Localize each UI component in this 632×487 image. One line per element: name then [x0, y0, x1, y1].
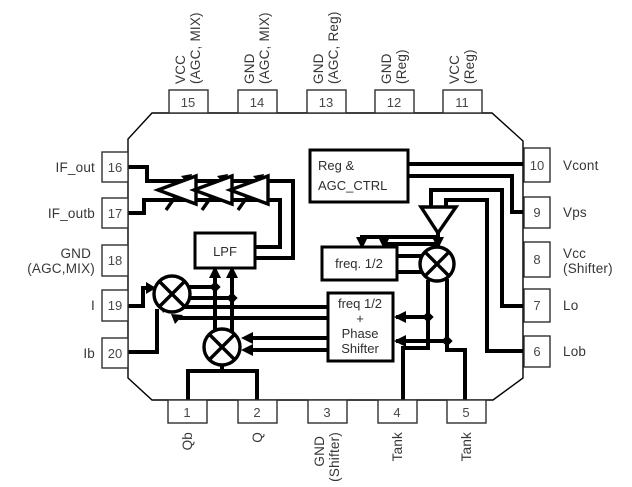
pin-number-4: 4	[393, 405, 400, 420]
shifter-label-line4: Shifter	[341, 341, 379, 356]
pin-label-q: Q	[250, 432, 265, 443]
pin-number-7: 7	[533, 298, 540, 313]
pin-number-2: 2	[253, 405, 260, 420]
pin-number-19: 19	[108, 298, 122, 313]
pin-number-20: 20	[108, 346, 122, 361]
pin-number-11: 11	[455, 95, 469, 110]
pin-label-12: GND (Reg)	[379, 49, 409, 84]
pin-label-gnd-shifter: GND (Shifter)	[312, 432, 342, 482]
pin-label-ib: Ib	[83, 346, 95, 361]
wire-qb-q	[188, 371, 257, 400]
pin-number-8: 8	[533, 252, 540, 267]
junction-dot	[422, 311, 433, 322]
pin-number-13: 13	[319, 95, 333, 110]
buffer-symbol	[421, 207, 456, 233]
mixer-q	[204, 329, 240, 365]
pin-label-13: GND (AGC, Reg)	[311, 11, 341, 84]
junction-dot	[209, 281, 220, 292]
pin-number-3: 3	[323, 405, 330, 420]
pin-number-17: 17	[108, 206, 122, 221]
wire-lob	[446, 200, 524, 351]
pin-label-11: VCC (Reg)	[447, 49, 477, 84]
pin-label-lo: Lo	[563, 298, 578, 313]
pin-label-vcont: Vcont	[563, 158, 599, 173]
freq-half-label: freq. 1/2	[335, 256, 383, 271]
arrowhead-left	[394, 335, 406, 347]
lpf-label: LPF	[213, 244, 237, 259]
pin-label-if-outb: IF_outb	[48, 206, 95, 221]
pin-number-9: 9	[533, 205, 540, 220]
pin-label-qb: Qb	[180, 432, 195, 450]
pin-label-i: I	[91, 298, 95, 313]
block-freq-half: freq. 1/2	[322, 247, 397, 280]
pin-number-15: 15	[181, 95, 195, 110]
shifter-label-line2: +	[356, 311, 364, 326]
pin-label-vcc-shifter: Vcc (Shifter)	[563, 246, 613, 276]
reg-agc-label-line1: Reg &	[318, 158, 354, 173]
pin-label-if-out: IF_out	[56, 160, 96, 175]
pin-number-16: 16	[108, 160, 122, 175]
junction-dot	[226, 292, 237, 303]
pin-label-14: GND (AGC, MIX)	[242, 12, 272, 84]
shifter-label-line1: freq 1/2	[338, 296, 382, 311]
pin-number-14: 14	[250, 95, 264, 110]
block-phase-shifter: freq 1/2 + Phase Shifter	[328, 293, 393, 361]
pin-label-15: VCC (AGC, MIX)	[173, 12, 203, 84]
pin-number-18: 18	[108, 253, 122, 268]
block-reg-agc: Reg & AGC_CTRL	[310, 150, 408, 202]
block-lpf: LPF	[195, 233, 255, 268]
mixer-i	[154, 276, 190, 312]
pin-label-lob: Lob	[563, 344, 586, 359]
arrowhead-left	[241, 344, 253, 356]
wire-tap-a	[362, 237, 438, 241]
wire-ib	[128, 309, 157, 352]
pin-number-10: 10	[530, 158, 544, 173]
pin-label-tank5: Tank	[459, 432, 474, 461]
pin-label-tank4: Tank	[390, 432, 405, 461]
ic-block-diagram: Reg & AGC_CTRL LPF freq. 1/2 freq 1/2 + …	[0, 0, 632, 487]
shifter-label-line3: Phase	[342, 326, 379, 341]
pin-label-vps: Vps	[563, 205, 587, 220]
arrowhead-left	[241, 332, 253, 344]
junction-dot	[441, 335, 452, 346]
pin-number-6: 6	[533, 344, 540, 359]
pin-number-1: 1	[183, 405, 190, 420]
pin-number-5: 5	[462, 405, 469, 420]
pin-label-gnd-agcmix: GND (AGC,MIX)	[27, 246, 95, 276]
mixer-lo	[420, 247, 454, 281]
pin-number-12: 12	[387, 95, 401, 110]
diagram-canvas: Reg & AGC_CTRL LPF freq. 1/2 freq 1/2 + …	[0, 0, 632, 487]
arrowhead-left	[394, 311, 406, 323]
reg-agc-label-line2: AGC_CTRL	[318, 178, 387, 193]
